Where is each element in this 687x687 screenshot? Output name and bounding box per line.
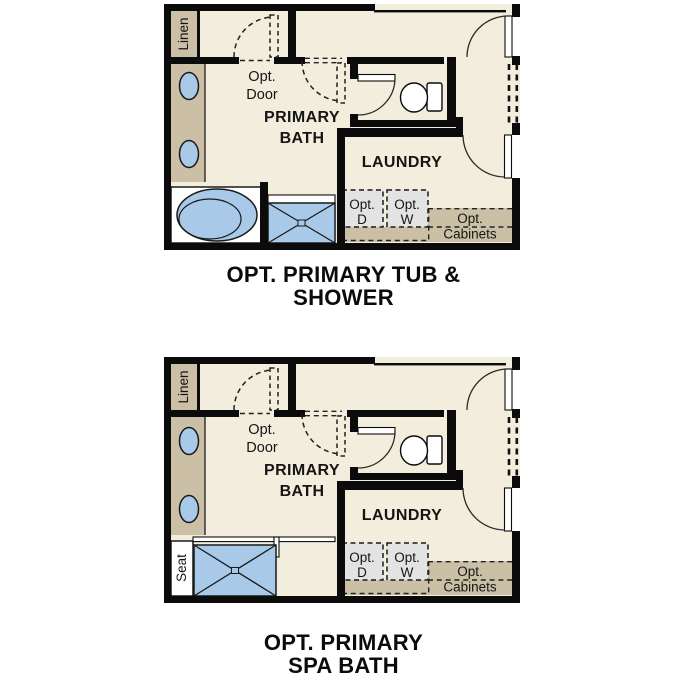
appliance-base <box>342 580 428 595</box>
opt-cabinets-label-1: Opt. <box>457 564 483 579</box>
wall <box>164 357 375 364</box>
shower-drain <box>298 220 305 226</box>
laundry-label: LAUNDRY <box>362 507 442 524</box>
room-label-2: BATH <box>280 130 325 147</box>
wall <box>260 182 268 243</box>
wall <box>350 416 358 432</box>
title-line: SPA BATH <box>0 654 687 677</box>
wall <box>164 243 520 250</box>
wall-line <box>374 10 506 12</box>
opt-door-label-1: Opt. <box>248 422 275 438</box>
door-slot <box>512 488 520 531</box>
room-label-2: BATH <box>280 483 325 500</box>
opt-dryer-label-1: Opt. <box>349 550 375 565</box>
plan-title-spa-bath: OPT. PRIMARY SPA BATH <box>0 631 687 677</box>
sink <box>180 496 199 523</box>
wall <box>350 63 358 79</box>
wall <box>288 11 296 64</box>
opt-dryer-label-2: D <box>357 212 367 227</box>
wall <box>197 11 200 57</box>
sink <box>180 428 199 455</box>
wall <box>164 596 520 603</box>
opt-cabinets-label-2: Cabinets <box>443 580 497 595</box>
shower-glass <box>193 537 335 542</box>
opt-door-label-2: Door <box>246 87 278 103</box>
wall <box>447 410 456 480</box>
opt-washer-label-1: Opt. <box>394 550 420 565</box>
plan-title-tub-shower: OPT. PRIMARY TUB & SHOWER <box>0 263 687 309</box>
opt-dryer-label-1: Opt. <box>349 197 375 212</box>
wall <box>512 4 520 17</box>
wall <box>350 473 456 480</box>
wall <box>164 4 171 250</box>
optional-door-leaf <box>270 368 278 410</box>
toilet-tank <box>427 436 442 464</box>
optional-door-leaf <box>337 416 345 456</box>
linen-label: Linen <box>176 370 191 403</box>
wall <box>288 364 296 417</box>
wall <box>337 481 463 490</box>
room-label-1: PRIMARY <box>264 109 340 126</box>
wall <box>512 357 520 370</box>
wall <box>447 57 456 127</box>
door-leaf <box>505 369 512 410</box>
wall <box>512 409 520 418</box>
plan-opt-primary-tub-shower: Linen Opt. Door PRIMARY BATH LAUNDRY Opt… <box>164 4 520 250</box>
optional-door-leaf <box>337 63 345 103</box>
door-leaf <box>358 428 395 435</box>
wall-line <box>374 363 506 365</box>
wall <box>337 128 463 137</box>
sink <box>180 141 199 168</box>
room-label-1: PRIMARY <box>264 462 340 479</box>
wall <box>164 4 375 11</box>
wall <box>197 364 200 410</box>
plan-opt-primary-spa-bath: Linen Seat Opt. Door PRIMARY BATH LAUNDR… <box>164 357 520 603</box>
shower-entry <box>268 195 335 203</box>
door-leaf <box>505 135 512 178</box>
wall <box>512 56 520 65</box>
floor-plan-drawing-spa-bath: Linen Seat Opt. Door PRIMARY BATH LAUNDR… <box>164 357 520 603</box>
door-leaf <box>358 75 395 82</box>
opt-washer-label-1: Opt. <box>394 197 420 212</box>
toilet-bowl <box>401 83 428 112</box>
door-slot <box>512 17 520 56</box>
title-line: OPT. PRIMARY <box>0 631 687 654</box>
wall <box>164 357 171 603</box>
laundry-label: LAUNDRY <box>362 154 442 171</box>
opt-door-label-2: Door <box>246 440 278 456</box>
opt-cabinets-label-2: Cabinets <box>443 227 497 242</box>
wall <box>164 410 239 417</box>
wall <box>164 57 239 64</box>
opt-dryer-label-2: D <box>357 565 367 580</box>
opt-washer-label-2: W <box>401 565 414 580</box>
toilet-bowl <box>401 436 428 465</box>
toilet-tank <box>427 83 442 111</box>
door-leaf <box>505 488 512 531</box>
sink <box>180 73 199 100</box>
wall <box>350 120 456 127</box>
door-leaf <box>505 16 512 57</box>
optional-door-leaf <box>270 15 278 57</box>
title-line: OPT. PRIMARY TUB & <box>0 263 687 286</box>
title-line: SHOWER <box>0 286 687 309</box>
appliance-base <box>342 227 428 242</box>
opt-cabinets-label-1: Opt. <box>457 211 483 226</box>
seat-label: Seat <box>174 554 189 582</box>
wall <box>347 410 444 417</box>
wall <box>347 57 444 64</box>
wall <box>337 128 345 243</box>
door-slot <box>512 370 520 409</box>
shower-drain <box>232 568 239 574</box>
opt-door-label-1: Opt. <box>248 69 275 85</box>
wall <box>337 481 345 596</box>
floor-plan-drawing-tub-shower: Linen Opt. Door PRIMARY BATH LAUNDRY Opt… <box>164 4 520 250</box>
opt-washer-label-2: W <box>401 212 414 227</box>
door-slot <box>512 135 520 178</box>
linen-label: Linen <box>176 17 191 50</box>
